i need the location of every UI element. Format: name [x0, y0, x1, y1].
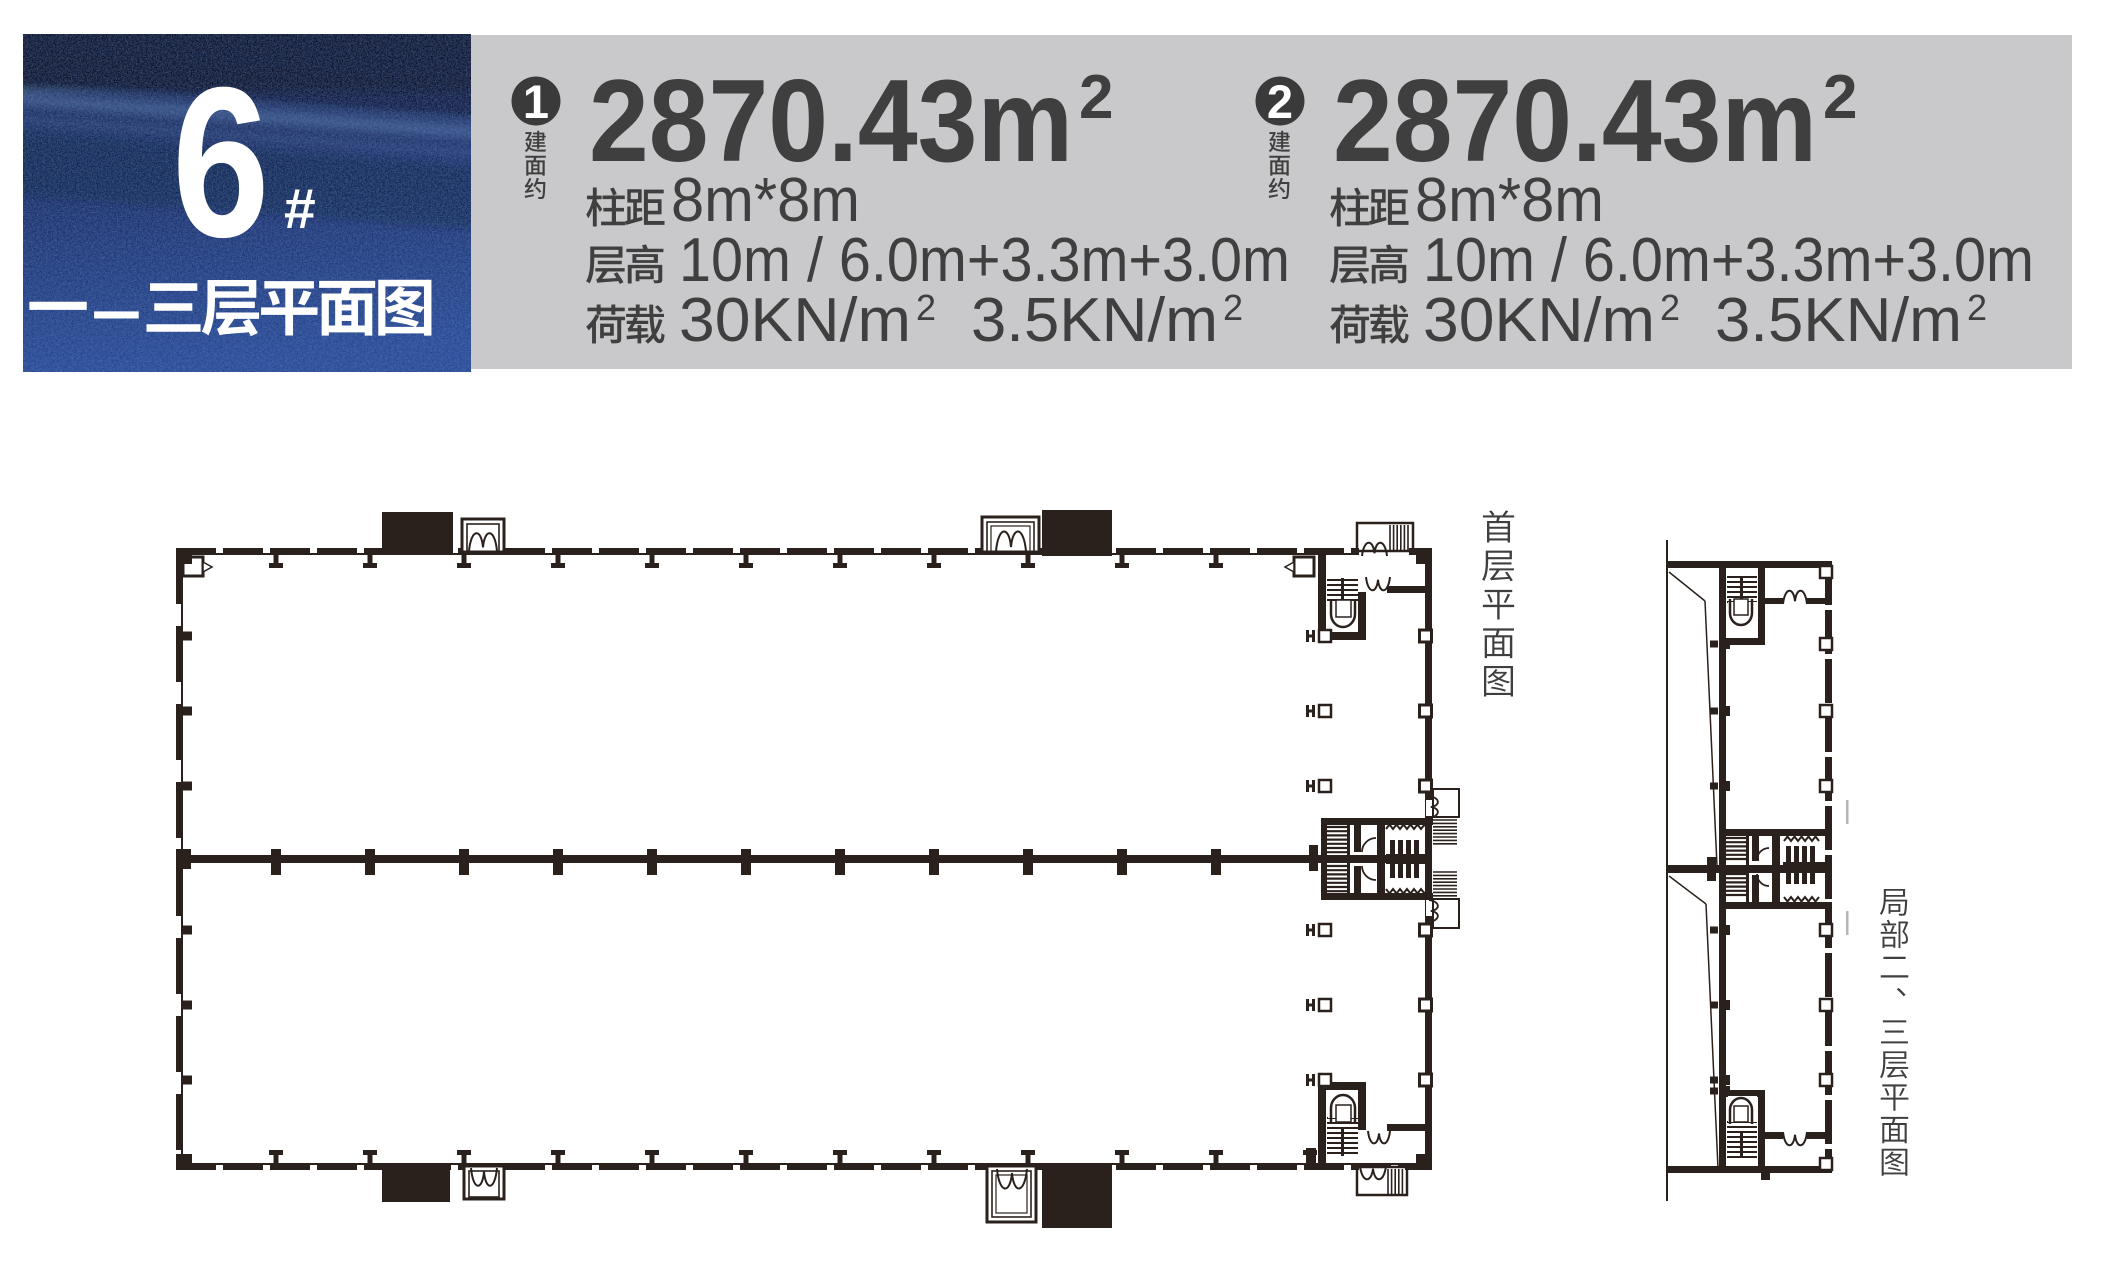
svg-text:3.5KN/m: 3.5KN/m	[1715, 286, 1962, 355]
svg-text:2: 2	[1223, 287, 1243, 328]
svg-text:2: 2	[1660, 287, 1680, 328]
svg-text:2: 2	[1267, 75, 1293, 128]
svg-text:3.5KN/m: 3.5KN/m	[971, 286, 1218, 355]
svg-text:8m*8m: 8m*8m	[671, 166, 860, 235]
svg-text:2: 2	[1967, 287, 1987, 328]
svg-text:10m / 6.0m+3.3m+3.0m: 10m / 6.0m+3.3m+3.0m	[1423, 226, 2034, 295]
svg-text:30KN/m: 30KN/m	[1423, 286, 1655, 355]
svg-text:30KN/m: 30KN/m	[679, 286, 911, 355]
svg-text:2: 2	[916, 287, 936, 328]
svg-text:#: #	[284, 177, 316, 241]
svg-text:1: 1	[523, 75, 549, 128]
svg-text:6: 6	[172, 44, 270, 282]
svg-text:2: 2	[1079, 63, 1113, 132]
svg-text:8m*8m: 8m*8m	[1415, 166, 1604, 235]
svg-text:2: 2	[1823, 63, 1857, 132]
svg-text:10m / 6.0m+3.3m+3.0m: 10m / 6.0m+3.3m+3.0m	[679, 226, 1290, 295]
